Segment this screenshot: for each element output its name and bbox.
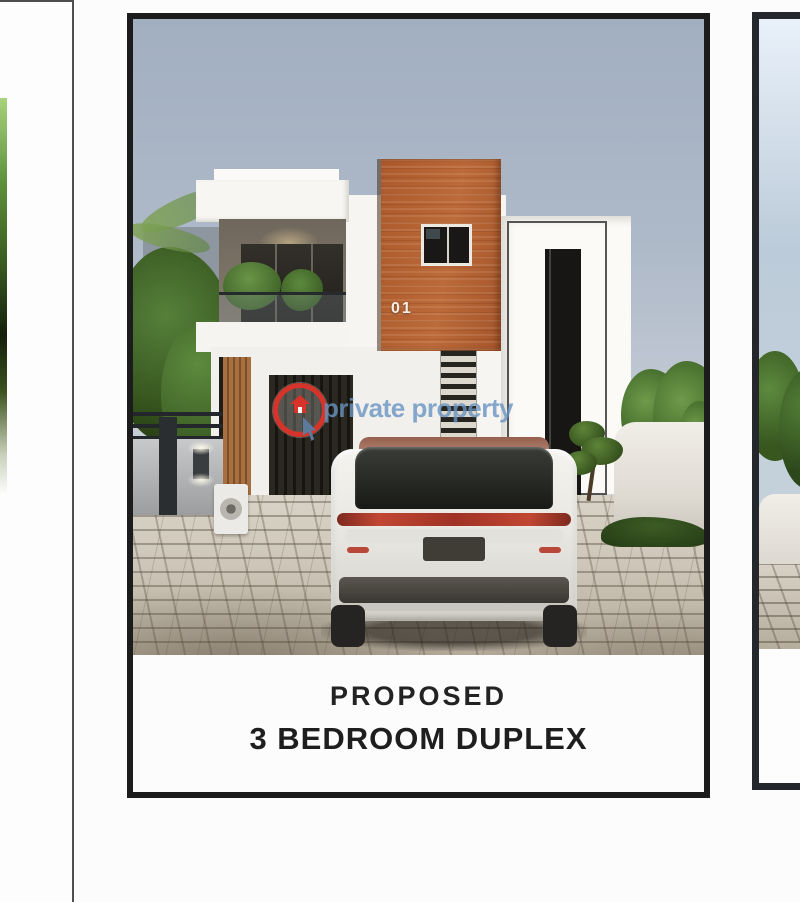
car-license-plate xyxy=(423,537,485,561)
louvre-stair-window xyxy=(441,351,476,447)
car-reflector-right xyxy=(539,547,561,553)
duplex-rendering-photo: 01 xyxy=(133,19,704,655)
caption-line-2: 3 BEDROOM DUPLEX xyxy=(249,721,587,757)
gallery-card-main[interactable]: 01 xyxy=(127,13,710,798)
car-bumper xyxy=(339,577,569,603)
car-bumper-sill xyxy=(339,603,569,611)
real-estate-listing-gallery: { "gallery": { "left_card": { "note": ""… xyxy=(0,0,800,810)
car-wheel-right xyxy=(543,605,577,647)
gate-pillar xyxy=(159,417,177,515)
updown-wall-light xyxy=(193,449,209,479)
wood-slat-column xyxy=(223,357,251,497)
listing-caption: PROPOSED 3 BEDROOM DUPLEX xyxy=(133,655,704,792)
next-card-caption-area xyxy=(759,649,800,789)
gallery-card-previous[interactable] xyxy=(0,0,74,902)
white-suv-rear xyxy=(331,435,577,651)
unit-number-label: 01 xyxy=(391,300,435,318)
previous-card-image-sliver xyxy=(0,98,7,494)
car-reflector-left xyxy=(347,547,369,553)
upper-fascia xyxy=(196,180,349,222)
ac-outdoor-unit xyxy=(214,484,248,534)
brick-tower-window xyxy=(421,224,472,266)
next-card-pavers xyxy=(759,564,800,654)
caption-line-1: PROPOSED xyxy=(330,681,507,712)
gallery-card-next[interactable] xyxy=(752,12,800,790)
car-tail-light-strip xyxy=(337,513,571,526)
car-rear-window xyxy=(355,447,553,509)
car-wheel-left xyxy=(331,605,365,647)
